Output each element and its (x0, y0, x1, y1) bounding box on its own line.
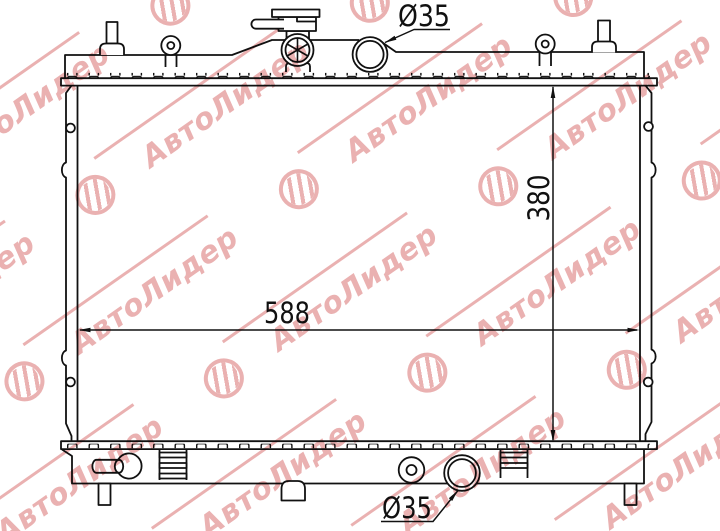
outlet-diameter-text: Ø35 (382, 491, 432, 525)
top-mount-pin-right (592, 21, 616, 53)
radiator-drawing-page: 588 380 Ø35 Ø35 АвтоЛидерАвтоЛидерАвтоЛи… (0, 0, 720, 531)
label-inlet-diameter: Ø35 (385, 0, 450, 43)
dimension-height: 380 (522, 86, 556, 442)
bracket-bottom-right (501, 450, 528, 478)
label-outlet-diameter: Ø35 (381, 490, 458, 525)
bracket-hole-right (536, 35, 555, 67)
core-height-text: 380 (522, 175, 556, 222)
drain-port (92, 453, 141, 478)
outlet-port (444, 455, 480, 491)
bracket-hole-left (161, 36, 180, 67)
inlet-port (353, 37, 388, 72)
bracket-bottom-left (160, 450, 187, 480)
bottom-mount-pin-right (625, 484, 637, 506)
side-panel-left (62, 86, 78, 442)
bottom-bump (282, 481, 306, 501)
top-mount-pin-left (100, 22, 124, 55)
bottom-mount-pin-left (99, 484, 111, 506)
filler-neck (282, 31, 314, 72)
sensor-port (399, 457, 425, 483)
dimension-width: 588 (79, 296, 640, 332)
top-header-strip (61, 73, 657, 86)
core-width-text: 588 (264, 296, 310, 330)
bottom-header-strip (61, 441, 657, 449)
inlet-diameter-text: Ø35 (398, 0, 450, 33)
overflow-tube (251, 20, 284, 29)
side-panel-right (640, 86, 656, 442)
radiator-diagram: 588 380 Ø35 Ø35 (0, 0, 720, 531)
bottom-tank (62, 449, 644, 484)
